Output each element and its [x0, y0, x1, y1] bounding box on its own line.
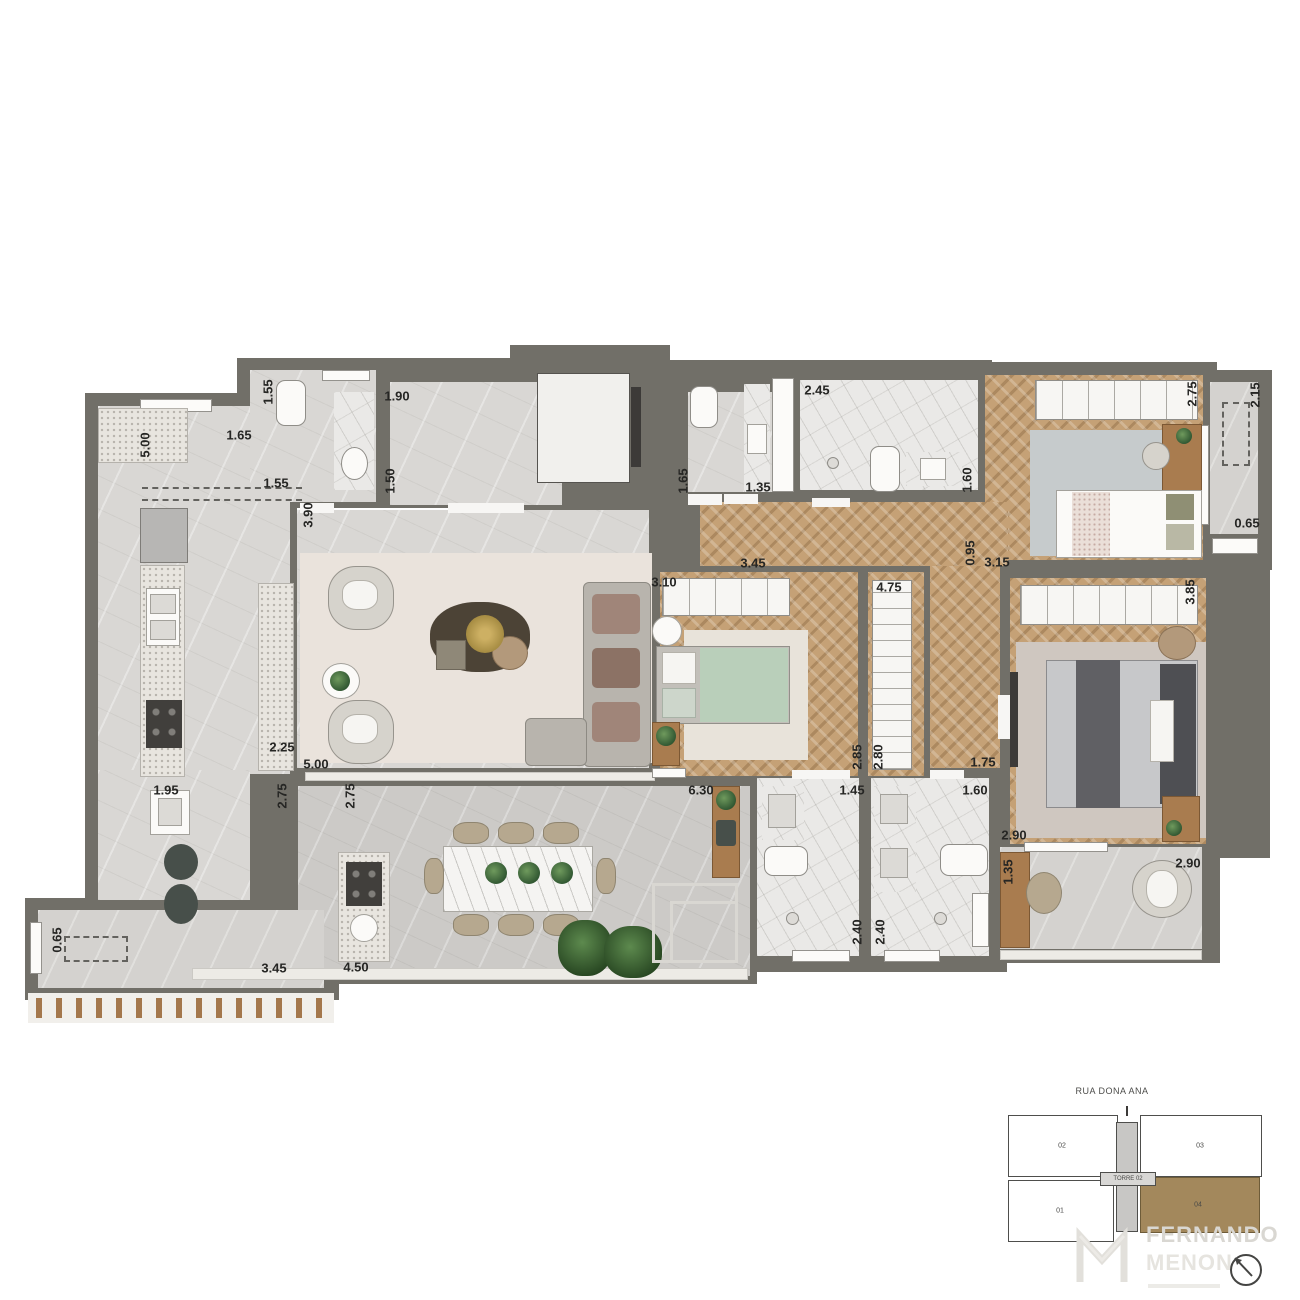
- window-bedroom2: [652, 768, 686, 778]
- bedroom2-blanket: [700, 648, 788, 722]
- dimension-label: 2.40: [873, 919, 888, 944]
- armchair-1-pillow: [342, 580, 378, 610]
- master-nightstand-plant: [1166, 820, 1182, 836]
- dimension-label: 1.55: [263, 476, 288, 491]
- master-nightstand: [1162, 796, 1200, 842]
- dimension-label: 5.00: [303, 757, 328, 772]
- bedroom2-pillow: [662, 652, 696, 684]
- bathB-basin-1: [880, 794, 908, 824]
- dining-chair-5: [498, 914, 534, 936]
- dimension-label: 2.75: [275, 783, 290, 808]
- dimension-label: 2.75: [343, 783, 358, 808]
- dining-plant-3: [551, 862, 573, 884]
- sofa-cushion-3: [592, 702, 640, 742]
- fridge: [140, 508, 188, 563]
- dimension-label: 6.30: [688, 783, 713, 798]
- ottoman-1: [164, 844, 198, 880]
- door-bath3: [812, 498, 850, 507]
- window-bathB: [884, 950, 940, 962]
- bathB-drain: [934, 912, 947, 925]
- window-balcony-right: [1212, 538, 1258, 554]
- door-hall-living: [448, 503, 524, 513]
- dining-chair-3: [543, 822, 579, 844]
- dimension-label: 1.90: [384, 389, 409, 404]
- sideboard-decor: [716, 820, 736, 846]
- kitchen-sink-bowl-2: [150, 620, 176, 640]
- dimension-label: 2.25: [269, 740, 294, 755]
- floor-plan-canvas: RUA DONA ANA FERNANDO MENON 1.551.651.55…: [0, 0, 1300, 1300]
- master-pillow: [1150, 700, 1174, 762]
- window-master-balcony: [1024, 842, 1108, 852]
- keyplan-label: 02: [1058, 1143, 1066, 1150]
- ottoman-2: [164, 884, 198, 924]
- side-table-plant: [330, 671, 350, 691]
- watermark-line1: FERNANDO: [1146, 1222, 1279, 1248]
- master-tv: [1010, 672, 1018, 767]
- keyplan-street-tick: [1126, 1106, 1128, 1116]
- dimension-label: 2.85: [850, 744, 865, 769]
- dimension-label: 1.65: [676, 468, 691, 493]
- duct-bathB: [972, 893, 989, 947]
- dimension-label: 3.15: [984, 555, 1009, 570]
- door-bathA: [816, 770, 850, 779]
- north-compass-icon: [1222, 1246, 1270, 1294]
- bathA-drain: [786, 912, 799, 925]
- dimension-label: 1.95: [153, 783, 178, 798]
- bath3-drain: [827, 457, 839, 469]
- dimension-label: 3.90: [301, 502, 316, 527]
- watermark-m-logo-icon: [1072, 1224, 1132, 1286]
- bedroom3-wardrobe: [1035, 380, 1198, 420]
- sideboard-plant: [716, 790, 736, 810]
- dining-chair-7: [424, 858, 444, 894]
- sofa-cushion-1: [592, 594, 640, 634]
- powder-basin: [341, 447, 368, 480]
- sofa-chaise: [525, 718, 587, 766]
- dining-chair-2: [498, 822, 534, 844]
- dimension-label: 1.55: [261, 379, 276, 404]
- dimension-label: 2.15: [1248, 382, 1263, 407]
- dimension-label: 0.65: [50, 927, 65, 952]
- dimension-label: 3.10: [651, 575, 676, 590]
- bathA-toilet: [764, 846, 808, 876]
- balcony-armchair-cushion: [1146, 870, 1178, 908]
- master-blanket: [1076, 660, 1120, 808]
- dimension-label: 1.50: [383, 468, 398, 493]
- coffee-table-medallion: [466, 615, 504, 653]
- master-wardrobe: [1020, 585, 1198, 625]
- dimension-label: 2.45: [804, 383, 829, 398]
- dimension-label: 3.85: [1183, 579, 1198, 604]
- watermark-line2: MENON: [1146, 1250, 1233, 1276]
- lavabo-basin: [747, 424, 767, 454]
- window-bathA: [792, 950, 850, 962]
- armchair-2-pillow: [342, 714, 378, 744]
- balcony-bl-dashed: [64, 936, 128, 962]
- dimension-label: 2.90: [1001, 828, 1026, 843]
- watermark-tagline: [1148, 1284, 1220, 1288]
- dimension-label: 2.40: [850, 919, 865, 944]
- dimension-label: 4.75: [876, 580, 901, 595]
- dimension-label: 5.00: [138, 432, 153, 457]
- dining-chair-8: [596, 858, 616, 894]
- dimension-label: 1.35: [1001, 859, 1016, 884]
- bedroom3-pillow-1: [1166, 494, 1194, 520]
- elevator-floor: [537, 373, 630, 483]
- dimension-label: 2.75: [1185, 381, 1200, 406]
- grill-sink: [350, 914, 378, 942]
- dimension-label: 1.60: [962, 783, 987, 798]
- bedroom2-pillow-2: [662, 688, 696, 718]
- bathB-basin-2: [880, 848, 908, 878]
- dining-chair-1: [453, 822, 489, 844]
- laundry-bowl: [158, 798, 182, 826]
- dimension-label: 0.95: [963, 540, 978, 565]
- bedroom2-wardrobe: [662, 578, 790, 616]
- keyplan-street-label: RUA DONA ANA: [1075, 1086, 1148, 1096]
- wall-right-column: [1198, 548, 1270, 858]
- balcony-edge: [1000, 950, 1202, 960]
- bedroom3-pillow-2: [1166, 524, 1194, 550]
- dimension-label: 1.60: [960, 467, 975, 492]
- dimension-label: 4.50: [343, 960, 368, 975]
- dimension-label: 3.45: [740, 556, 765, 571]
- dimension-label: 1.45: [839, 783, 864, 798]
- window-balcony-bl: [30, 922, 42, 974]
- keyplan-label: TORRE 02: [1113, 1176, 1142, 1182]
- cooktop: [146, 700, 182, 748]
- deck: [28, 993, 334, 1023]
- powder-toilet: [276, 380, 306, 426]
- master-table: [1158, 626, 1196, 660]
- bathB-toilet: [940, 844, 988, 876]
- dining-plant-2: [518, 862, 540, 884]
- keyplan-label: 01: [1056, 1208, 1064, 1215]
- bedroom3-plant: [1176, 428, 1192, 444]
- door-lavabo: [724, 494, 758, 504]
- grill: [346, 862, 382, 906]
- bath3-toilet: [870, 446, 900, 492]
- keyplan-label: 04: [1194, 1202, 1202, 1209]
- keyplan-label: 03: [1196, 1143, 1204, 1150]
- dimension-label: 0.65: [1234, 516, 1259, 531]
- lavabo-toilet: [690, 386, 718, 428]
- kitchen-sink-bowl-1: [150, 594, 176, 614]
- coffee-table-tray: [436, 640, 466, 670]
- balcony-right-dashed: [1222, 402, 1250, 466]
- duct-shaft: [772, 378, 794, 492]
- bedroom2-plant: [656, 726, 676, 746]
- door-corridor-entry: [688, 494, 722, 505]
- closet-shelves: [872, 580, 912, 770]
- dimension-label: 1.35: [745, 480, 770, 495]
- window-powder: [322, 370, 370, 381]
- bedroom3-blanket: [1072, 492, 1110, 556]
- office-chair: [1026, 872, 1062, 914]
- door-bathB: [930, 770, 964, 779]
- bedroom3-chair: [1142, 442, 1170, 470]
- dimension-label: 2.90: [1175, 856, 1200, 871]
- sofa-cushion-2: [592, 648, 640, 688]
- dimension-label: 2.80: [871, 744, 886, 769]
- dimension-label: 1.75: [970, 755, 995, 770]
- bath3-basin: [920, 458, 946, 480]
- dimension-label: 1.65: [226, 428, 251, 443]
- elevator-door: [631, 387, 641, 467]
- dining-chair-4: [453, 914, 489, 936]
- bathA-basin: [768, 794, 796, 828]
- terrace-step-inner: [670, 901, 738, 963]
- corridor-leg-floor: [930, 566, 1000, 768]
- dining-plant-1: [485, 862, 507, 884]
- bedroom2-table: [652, 616, 682, 646]
- dimension-label: 3.45: [261, 961, 286, 976]
- living-door-sill: [305, 772, 655, 781]
